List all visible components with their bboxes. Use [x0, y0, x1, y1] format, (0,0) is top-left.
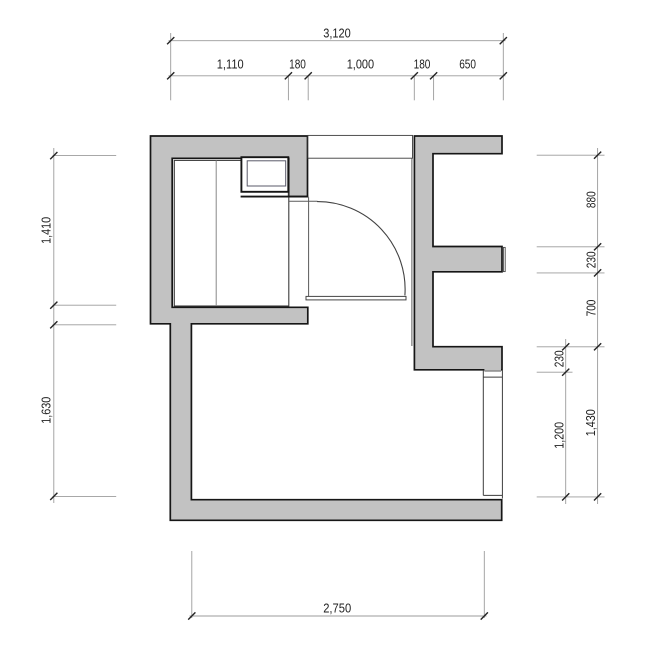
svg-text:180: 180 — [289, 56, 306, 71]
svg-text:2,750: 2,750 — [323, 601, 351, 616]
svg-text:230: 230 — [551, 350, 566, 367]
svg-text:650: 650 — [459, 56, 476, 71]
svg-text:1,000: 1,000 — [347, 56, 374, 71]
svg-text:1,110: 1,110 — [217, 56, 244, 71]
svg-text:1,630: 1,630 — [38, 397, 53, 424]
svg-text:3,120: 3,120 — [323, 26, 351, 41]
svg-text:1,410: 1,410 — [38, 217, 53, 244]
svg-text:700: 700 — [584, 300, 599, 317]
svg-text:880: 880 — [584, 191, 599, 208]
svg-text:230: 230 — [584, 251, 599, 268]
svg-text:1,200: 1,200 — [551, 422, 566, 449]
svg-text:180: 180 — [414, 56, 431, 71]
svg-text:1,430: 1,430 — [583, 409, 598, 436]
